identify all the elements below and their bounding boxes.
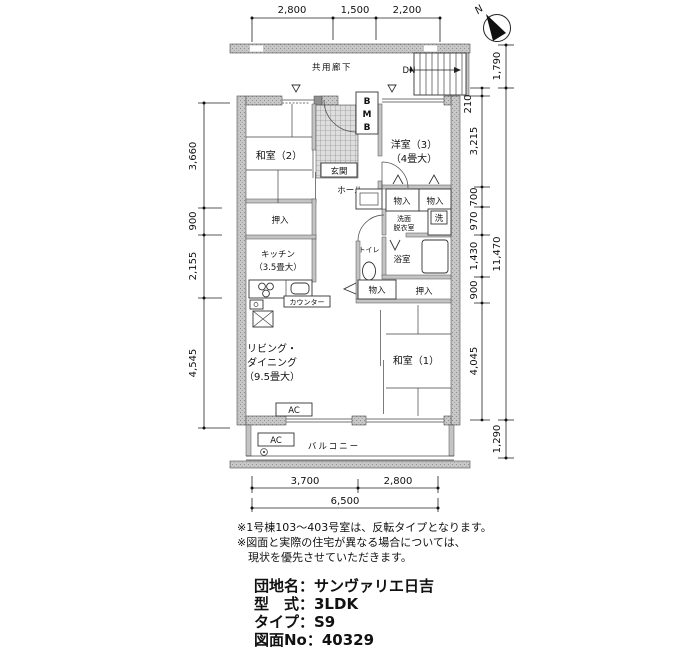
note-line-2: ※図面と実際の住宅が異なる場合については、 [237,535,466,549]
monoire-c-label: 物入 [368,285,386,296]
dim-bottom-total: 6,500 [331,496,360,507]
monoire-b-label: 物入 [426,196,444,207]
door-mark-top-right-icon [388,85,396,92]
staircase: DN [403,53,466,95]
info-estate-name: 団地名：サンヴァリエ日吉 [254,577,434,595]
storage-row: 物入 物入 [356,189,451,211]
balcony-label: バルコニー [308,442,360,452]
closet-door-mark-a-icon [393,175,403,184]
dim-right-outer-2: 11,470 [492,237,503,272]
dim-right-outer-3: 1,290 [492,425,503,454]
bathroom: 浴室 [390,240,448,273]
door-mark-top-left-icon [292,85,300,92]
dim-left-4: 4,545 [188,349,199,378]
dim-right-inner-3: 700 [469,187,480,206]
living-label-1: リビング・ [247,342,297,355]
yoshitsu3-size-label: （4畳大） [391,152,437,165]
monoire-a-label: 物入 [393,196,411,207]
yoshitsu3-room: 洋室（3） （4畳大） [382,138,439,188]
bath-label: 浴室 [393,254,411,265]
ac-living-label: AC [288,406,300,416]
floorplan-drawing: 2,800 1,500 2,200 N 共用廊下 DN [0,0,700,650]
note-line-1: ※1号棟103〜403号室は、反転タイプとなります。 [237,520,492,534]
kitchen-label: キッチン [261,250,295,260]
floorplan-page: { "compass": { "north": "N" }, "corridor… [0,0,700,650]
property-info: 団地名：サンヴァリエ日吉 型 式：3LDK タイプ：S9 図面No：40329 [254,577,434,649]
closet-door-mark-b-icon [429,175,439,184]
info-type: タイプ：S9 [254,613,335,631]
dim-left-2: 900 [188,211,199,230]
living-dining: リビング・ ダイニング （9.5畳大） AC [244,342,312,416]
dimension-right-outer: 1,790 11,470 1,290 [492,44,514,460]
toilet-label: トイレ [359,246,380,254]
dimension-bottom: 3,700 2,800 6,500 [251,476,440,512]
dim-right-inner-5: 1,430 [469,242,480,271]
corridor-label: 共用廊下 [312,62,352,73]
meter-box-b1: B [364,97,371,107]
info-layout-type: 型 式：3LDK [254,595,359,613]
north-arrow: N [473,3,510,41]
yoshitsu3-label: 洋室（3） [391,138,437,151]
senmen-label-1: 洗面 [397,214,411,223]
dim-right-inner-1: 210 [463,94,474,113]
dim-left-1: 3,660 [188,142,199,171]
ac-balcony-label: AC [270,436,282,446]
common-corridor: 共用廊下 DN [230,44,470,96]
bathtub-icon [422,240,448,273]
dim-right-inner-2: 3,215 [469,127,480,156]
oshiire-lower-label: 押入 [415,286,433,297]
dim-left-3: 2,155 [188,252,199,281]
dim-bottom-1: 3,700 [291,476,320,487]
senmen-label-2: 脱衣室 [394,223,415,232]
washer-label: 洗 [435,213,444,224]
washitsu2-label: 和室（2） [256,149,302,162]
genkan-label: 玄関 [330,166,347,177]
dimension-top: 2,800 1,500 2,200 [251,5,442,42]
info-drawing-no: 図面No：40329 [254,631,374,649]
note-line-3: 現状を優先させていただきます。 [237,550,412,564]
dimension-left: 3,660 900 2,155 4,545 [188,102,230,430]
dim-right-inner-4: 970 [469,211,480,230]
dim-top-2: 1,500 [341,5,370,16]
dim-top-3: 2,200 [393,5,422,16]
notes: ※1号棟103〜403号室は、反転タイプとなります。 ※図面と実際の住宅が異なる… [237,520,492,564]
washitsu2-room: 和室（2） [246,104,312,203]
kitchen-size-label: （3.5畳大） [254,262,302,273]
dim-bottom-2: 2,800 [384,476,413,487]
counter-label: カウンター [290,298,325,307]
entrance-area: 玄関 B M B ホール [316,92,378,196]
washitsu1-label: 和室（1） [393,354,439,367]
balcony: AC バルコニー [230,425,470,468]
kitchen-sink-icon [291,283,309,294]
washitsu1-room: 和室（1） [386,305,451,416]
monoire-arrow-icon [344,283,356,294]
meter-box-m: M [363,110,372,120]
kitchen: キッチン （3.5畳大） カウンター [249,250,330,327]
living-label-3: （9.5畳大） [244,370,300,383]
refrigerator-space-icon [253,311,273,327]
bath-door-mark-icon [390,240,400,250]
dim-right-inner-6: 900 [469,280,480,299]
meter-box-b2: B [364,123,371,133]
north-label: N [473,3,486,17]
dim-top-1: 2,800 [278,5,307,16]
oshiire-upper-label: 押入 [271,215,289,226]
dim-right-outer-1: 1,790 [492,52,503,81]
stairs-dn-label: DN [403,66,416,76]
dimension-right-inner: 210 3,215 700 970 1,430 900 4,045 [463,87,490,422]
dim-right-inner-7: 4,045 [469,347,480,376]
living-label-2: ダイニング [247,356,297,369]
